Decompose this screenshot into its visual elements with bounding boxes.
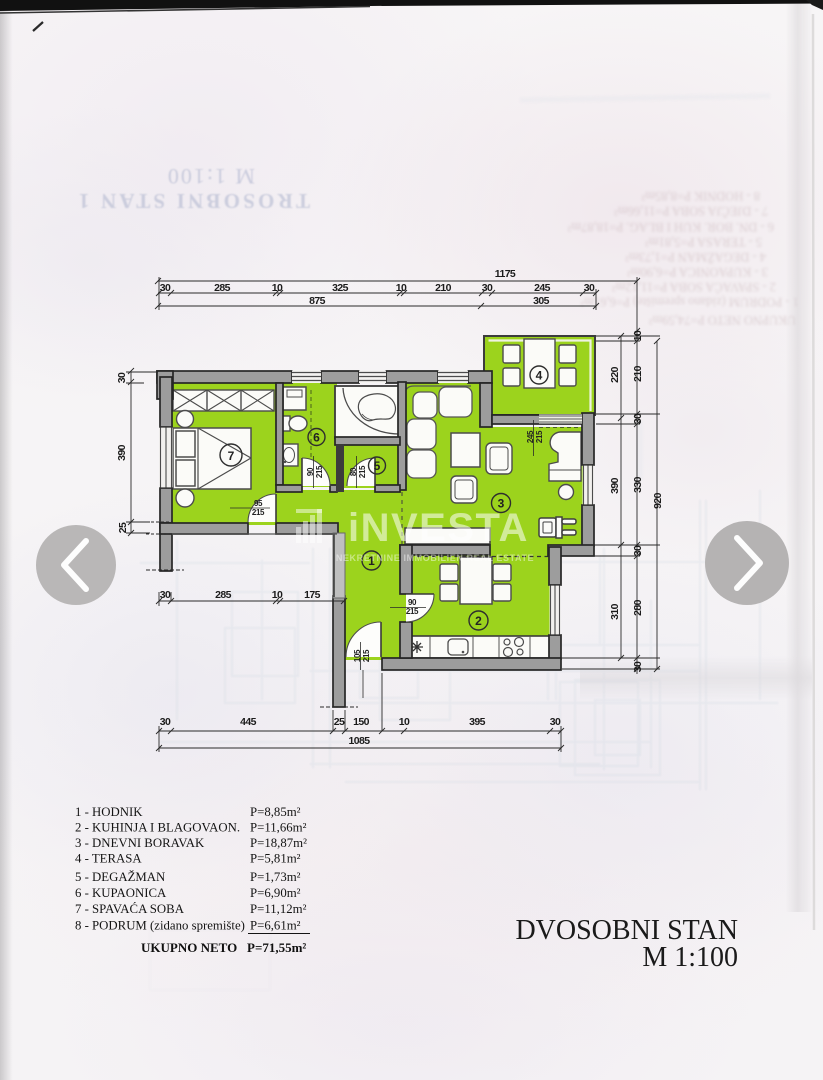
svg-text:10: 10 [272, 589, 283, 601]
svg-text:3 - DNEVNI BORAVAK: 3 - DNEVNI BORAVAK [75, 836, 205, 850]
svg-text:1085: 1085 [349, 735, 371, 747]
svg-text:4: 4 [536, 369, 543, 383]
svg-text:M 1:100: M 1:100 [642, 942, 738, 973]
svg-text:90: 90 [408, 598, 417, 607]
svg-text:25: 25 [334, 716, 345, 728]
svg-text:220: 220 [609, 366, 621, 382]
svg-text:P=5,81m²: P=5,81m² [250, 852, 301, 866]
svg-text:P=6,90m²: P=6,90m² [250, 886, 301, 900]
svg-text:6 - KUPAONICA: 6 - KUPAONICA [75, 886, 167, 900]
svg-text:UKUPNO NETO: UKUPNO NETO [141, 940, 237, 955]
svg-text:P=6,61m²: P=6,61m² [250, 919, 301, 933]
svg-text:305: 305 [533, 295, 549, 307]
svg-text:1 - PODRUM (zidano spremište): 1 - PODRUM (zidano spremište) P=6,61m² [580, 295, 799, 309]
svg-text:M 1:100: M 1:100 [166, 164, 255, 189]
svg-text:25: 25 [117, 522, 129, 533]
svg-text:P=71,55m²: P=71,55m² [247, 940, 306, 955]
svg-text:10: 10 [632, 330, 644, 341]
svg-text:30: 30 [116, 372, 128, 383]
svg-text:215: 215 [406, 607, 419, 616]
svg-text:4 - DEGAŽMAN P=1,73m²: 4 - DEGAŽMAN P=1,73m² [625, 250, 766, 264]
svg-text:4 - TERASA: 4 - TERASA [75, 852, 142, 866]
svg-text:215: 215 [535, 430, 544, 443]
svg-text:5 - TERASA P=5,81: 5 - TERASA P=5,81m² [645, 235, 762, 249]
svg-text:P=1,73m²: P=1,73m² [250, 870, 301, 884]
svg-text:TROSOBNI STAN 1: TROSOBNI STAN 1 [76, 189, 310, 213]
svg-text:215: 215 [362, 649, 371, 662]
svg-text:215: 215 [358, 465, 367, 478]
svg-text:7 - SPAVAĆA SOBA: 7 - SPAVAĆA SOBA [75, 902, 185, 916]
svg-text:310: 310 [609, 603, 621, 619]
svg-text:390: 390 [609, 477, 621, 493]
svg-text:30: 30 [160, 589, 171, 601]
svg-text:280: 280 [632, 599, 644, 615]
svg-text:P=8,85m²: P=8,85m² [250, 805, 301, 819]
svg-text:210: 210 [632, 365, 644, 381]
svg-text:390: 390 [116, 444, 128, 460]
svg-text:920: 920 [652, 492, 664, 508]
svg-text:95: 95 [254, 499, 263, 508]
svg-text:8 - HODNIK P=8,85: 8 - HODNIK P=8,85m² [641, 189, 760, 203]
svg-text:3 - KUPAONICA P=6,90m²: 3 - KUPAONICA P=6,90m² [627, 265, 768, 279]
svg-text:5: 5 [374, 459, 381, 473]
svg-text:875: 875 [309, 295, 325, 307]
svg-text:UKUPNO NETO P=74,59m²: UKUPNO NETO P=74,59m² [649, 313, 796, 327]
svg-text:NEKRETNINE IMMOBILIEN REAL E: NEKRETNINE IMMOBILIEN REAL ESTATE [336, 553, 534, 563]
svg-text:30: 30 [160, 282, 171, 294]
svg-text:30: 30 [632, 413, 644, 424]
svg-text:285: 285 [214, 282, 230, 294]
svg-text:1 - HODNIK: 1 - HODNIK [75, 805, 143, 819]
svg-text:6 - DN. BOR. KUH I BLAG. P=18: 6 - DN. BOR. KUH I BLAG. P=18,87m² [567, 220, 774, 234]
svg-text:10: 10 [396, 282, 407, 294]
svg-text:245: 245 [534, 282, 550, 294]
svg-text:1175: 1175 [495, 268, 516, 280]
svg-text:445: 445 [240, 716, 256, 728]
svg-text:2: 2 [475, 614, 482, 628]
svg-text:30: 30 [160, 716, 171, 728]
svg-text:P=11,66m²: P=11,66m² [250, 821, 307, 835]
svg-text:215: 215 [315, 465, 324, 478]
svg-text:10: 10 [272, 282, 283, 294]
svg-text:210: 210 [435, 282, 451, 294]
svg-text:175: 175 [304, 589, 320, 601]
svg-text:P=18,87m²: P=18,87m² [250, 836, 307, 850]
svg-text:30: 30 [632, 661, 644, 672]
svg-text:285: 285 [215, 589, 231, 601]
svg-text:330: 330 [632, 476, 644, 492]
svg-text:10: 10 [399, 716, 410, 728]
svg-text:7 - DJEČJA SOBA P=11,66m²: 7 - DJEČJA SOBA P=11,66m² [614, 204, 768, 218]
svg-text:215: 215 [252, 508, 265, 517]
svg-text:7: 7 [228, 449, 235, 463]
svg-text:395: 395 [469, 716, 485, 728]
svg-text:150: 150 [353, 716, 369, 728]
svg-text:8 - PODRUM (zidano spremište): 8 - PODRUM (zidano spremište) [75, 919, 245, 933]
svg-text:30: 30 [584, 282, 595, 294]
svg-text:6: 6 [313, 431, 320, 445]
svg-text:P=11,12m²: P=11,12m² [250, 902, 307, 916]
svg-text:30: 30 [482, 282, 493, 294]
svg-text:5 - DEGAŽMAN: 5 - DEGAŽMAN [75, 870, 165, 884]
svg-text:325: 325 [332, 282, 348, 294]
svg-text:30: 30 [632, 545, 644, 556]
svg-text:iNVESTA: iNVESTA [348, 506, 529, 550]
svg-text:2 - KUHINJA I BLAGOVAON.: 2 - KUHINJA I BLAGOVAON. [75, 821, 240, 835]
svg-text:30: 30 [550, 716, 561, 728]
